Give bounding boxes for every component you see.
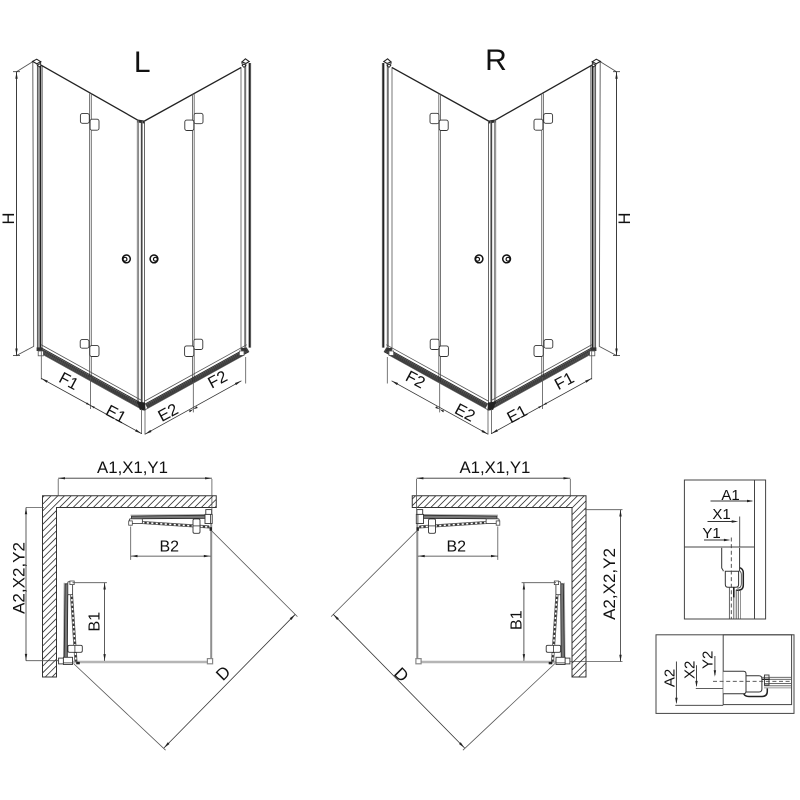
svg-text:A2,X2,Y2: A2,X2,Y2	[600, 548, 619, 620]
svg-text:L: L	[134, 46, 151, 79]
svg-text:B2: B2	[160, 539, 180, 556]
svg-text:H: H	[0, 213, 18, 225]
svg-text:H: H	[616, 213, 634, 225]
svg-text:B1: B1	[508, 610, 525, 630]
svg-text:Y1: Y1	[702, 525, 720, 542]
svg-text:B2: B2	[447, 539, 467, 556]
svg-text:X1: X1	[712, 506, 730, 523]
svg-text:A1,X1,Y1: A1,X1,Y1	[459, 458, 530, 477]
svg-text:R: R	[485, 44, 507, 77]
svg-text:X2: X2	[681, 661, 698, 679]
svg-text:A1: A1	[721, 487, 739, 504]
svg-text:A1,X1,Y1: A1,X1,Y1	[97, 458, 168, 477]
svg-text:A2,X2,Y2: A2,X2,Y2	[10, 542, 29, 614]
svg-text:B1: B1	[87, 612, 104, 632]
svg-text:A2: A2	[661, 669, 678, 687]
svg-text:Y2: Y2	[699, 651, 716, 669]
